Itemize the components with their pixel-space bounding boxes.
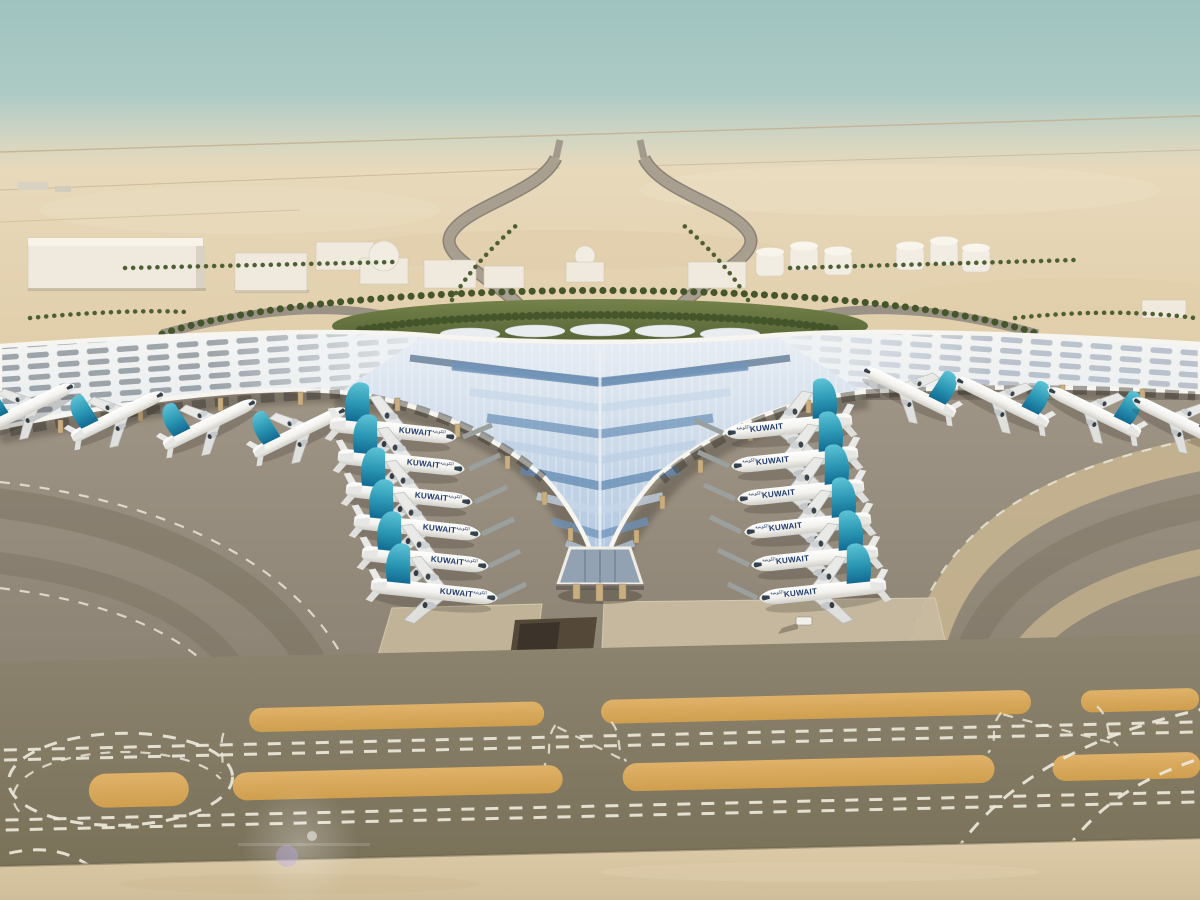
dome <box>369 241 399 271</box>
scene-svg: KUWAIT الكويتية KUWAIT الكويتية <box>0 0 1200 900</box>
distant-structure <box>18 182 48 190</box>
airport-aerial-rendering: KUWAIT الكويتية KUWAIT الكويتية <box>0 0 1200 900</box>
distant-structure <box>55 186 71 192</box>
